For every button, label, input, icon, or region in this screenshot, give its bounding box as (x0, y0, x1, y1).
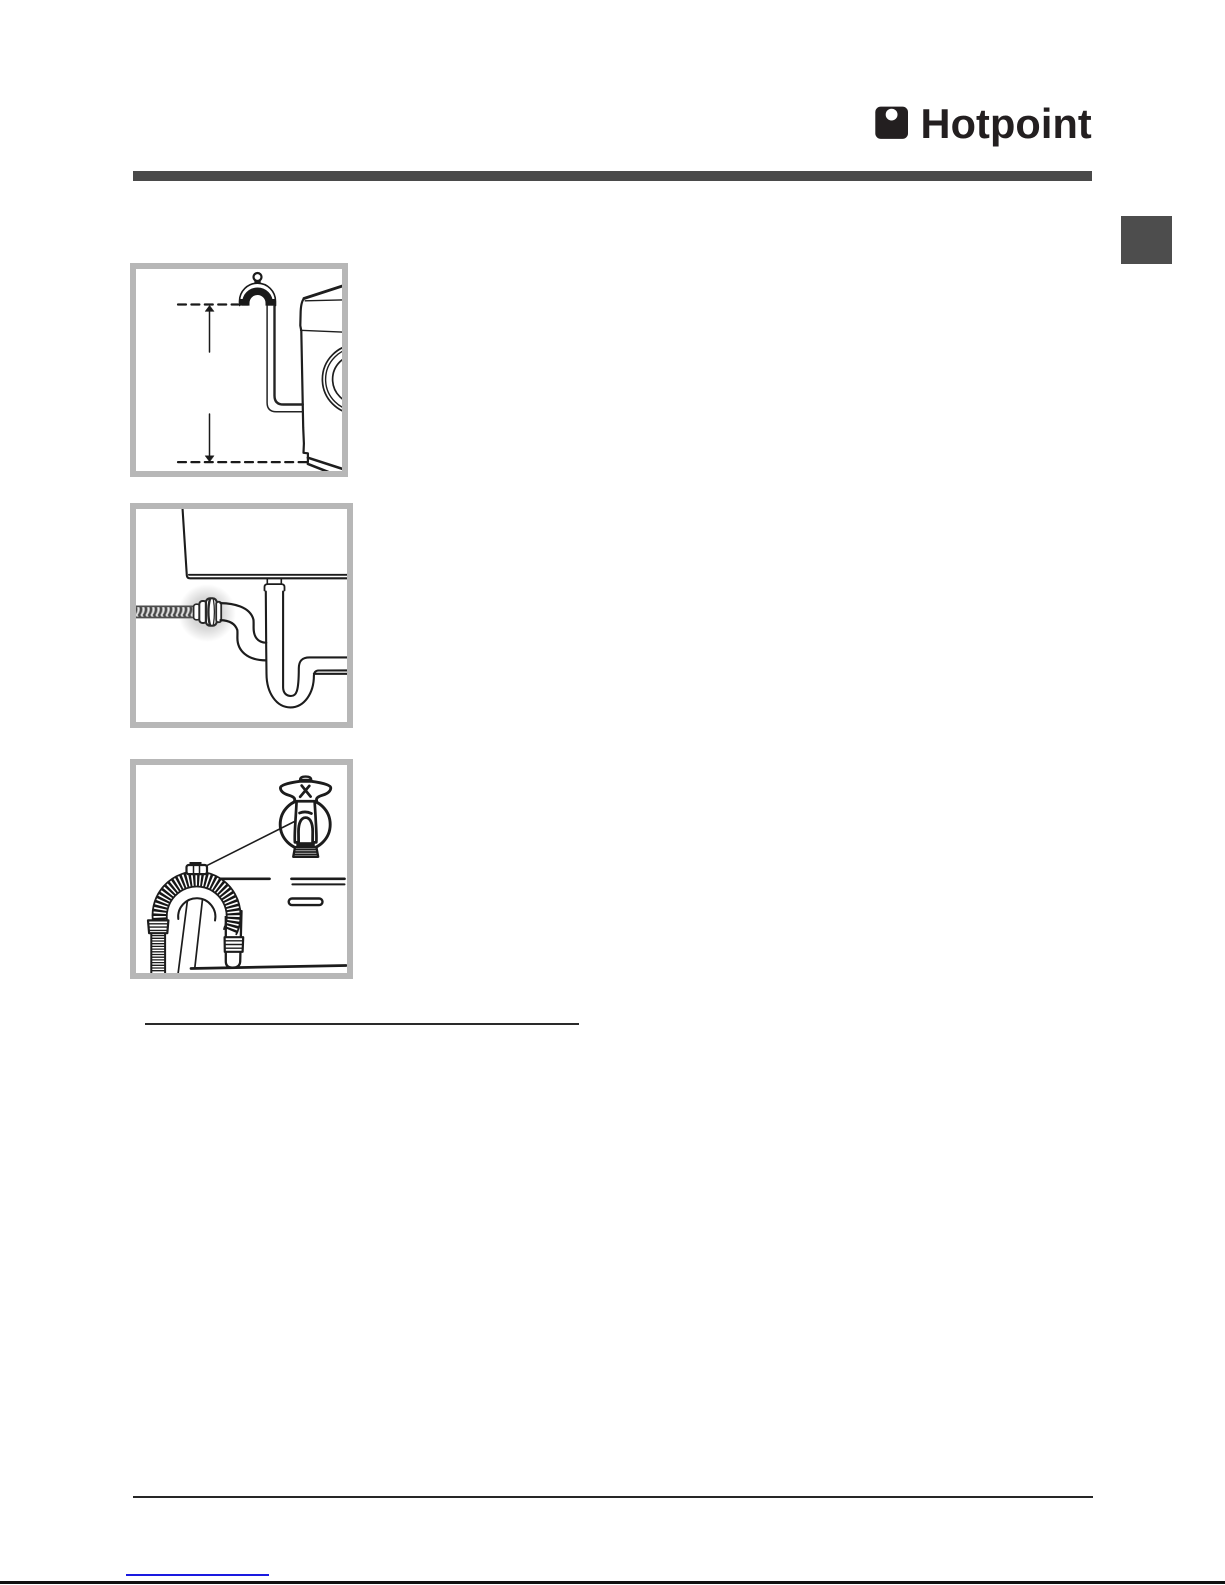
svg-text:Hotpoint: Hotpoint (921, 100, 1092, 147)
